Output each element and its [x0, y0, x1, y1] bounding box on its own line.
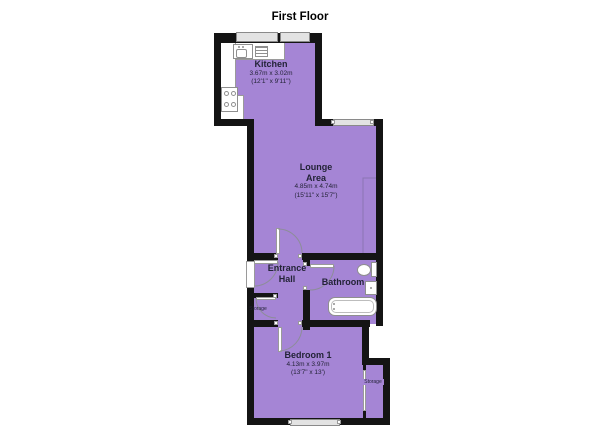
lounge-label: Lounge Area 4.85m x 4.74m (15'11" x 15'7… [257, 162, 375, 200]
bathroom-name: Bathroom [309, 277, 377, 288]
jamb-dot [288, 420, 292, 424]
wall-hall-bottom-b [302, 320, 370, 327]
bathtub-icon [328, 297, 377, 316]
bedroom-dims-metric: 4.13m x 3.97m [256, 361, 360, 370]
wall-right-upper [376, 119, 383, 326]
bedroom-storage-label: Storage [362, 379, 384, 385]
jamb-dot [274, 254, 278, 258]
entrance-hall-name-line1: Entrance [258, 263, 316, 274]
bedroom-dims-imperial: (13'7" x 13') [256, 369, 360, 378]
bedroom-window [290, 419, 340, 426]
jamb-dot [303, 286, 307, 290]
bedroom-storage-sliding-door [363, 370, 366, 411]
kitchen-window-1 [236, 32, 278, 42]
bedroom-name: Bedroom 1 [256, 350, 360, 361]
lounge-window [333, 119, 374, 126]
jamb-dot [298, 321, 302, 325]
lounge-door-leaf [276, 228, 280, 254]
toilet-tank-icon [371, 262, 377, 277]
jamb-dot [337, 420, 341, 424]
floorplan-canvas: First Floor [0, 0, 600, 436]
entrance-hall-name-line2: Hall [258, 274, 316, 285]
kitchen-drainer-icon [255, 46, 268, 57]
kitchen-label: Kitchen 3.67m x 3.02m (12'1" x 9'11") [215, 59, 327, 87]
wall-storage-right [383, 358, 390, 425]
wall-left-a [247, 119, 254, 262]
bedroom-door-leaf [278, 327, 282, 352]
cooker-hob-icon [221, 87, 238, 112]
jamb-dot [298, 254, 302, 258]
jamb-dot [331, 120, 335, 124]
lounge-name-line1: Lounge [257, 162, 375, 173]
kitchen-dims-metric: 3.67m x 3.02m [215, 70, 327, 79]
page-title: First Floor [0, 11, 600, 23]
jamb-dot [274, 321, 278, 325]
kitchen-dims-imperial: (12'1" x 9'11") [215, 78, 327, 87]
kitchen-sink-icon [233, 44, 253, 59]
entrance-hall-label: Entrance Hall [258, 263, 316, 284]
jamb-dot [370, 120, 374, 124]
hall-storage-label: Storage [245, 306, 271, 312]
lounge-dims-metric: 4.85m x 4.74m [257, 183, 375, 192]
bedroom-label: Bedroom 1 4.13m x 3.97m (13'7" x 13') [256, 350, 360, 378]
lounge-name-line2: Area [257, 173, 375, 184]
kitchen-window-2 [280, 32, 310, 42]
toilet-bowl-icon [357, 264, 371, 276]
wall-hall-top-b [302, 253, 383, 260]
jamb-dot [273, 294, 277, 298]
front-door [246, 261, 255, 288]
lounge-dims-imperial: (15'11" x 15'7") [257, 192, 375, 201]
bathroom-label: Bathroom [309, 277, 377, 288]
wall-storage-divider-bottom [363, 410, 366, 418]
kitchen-name: Kitchen [215, 59, 327, 70]
